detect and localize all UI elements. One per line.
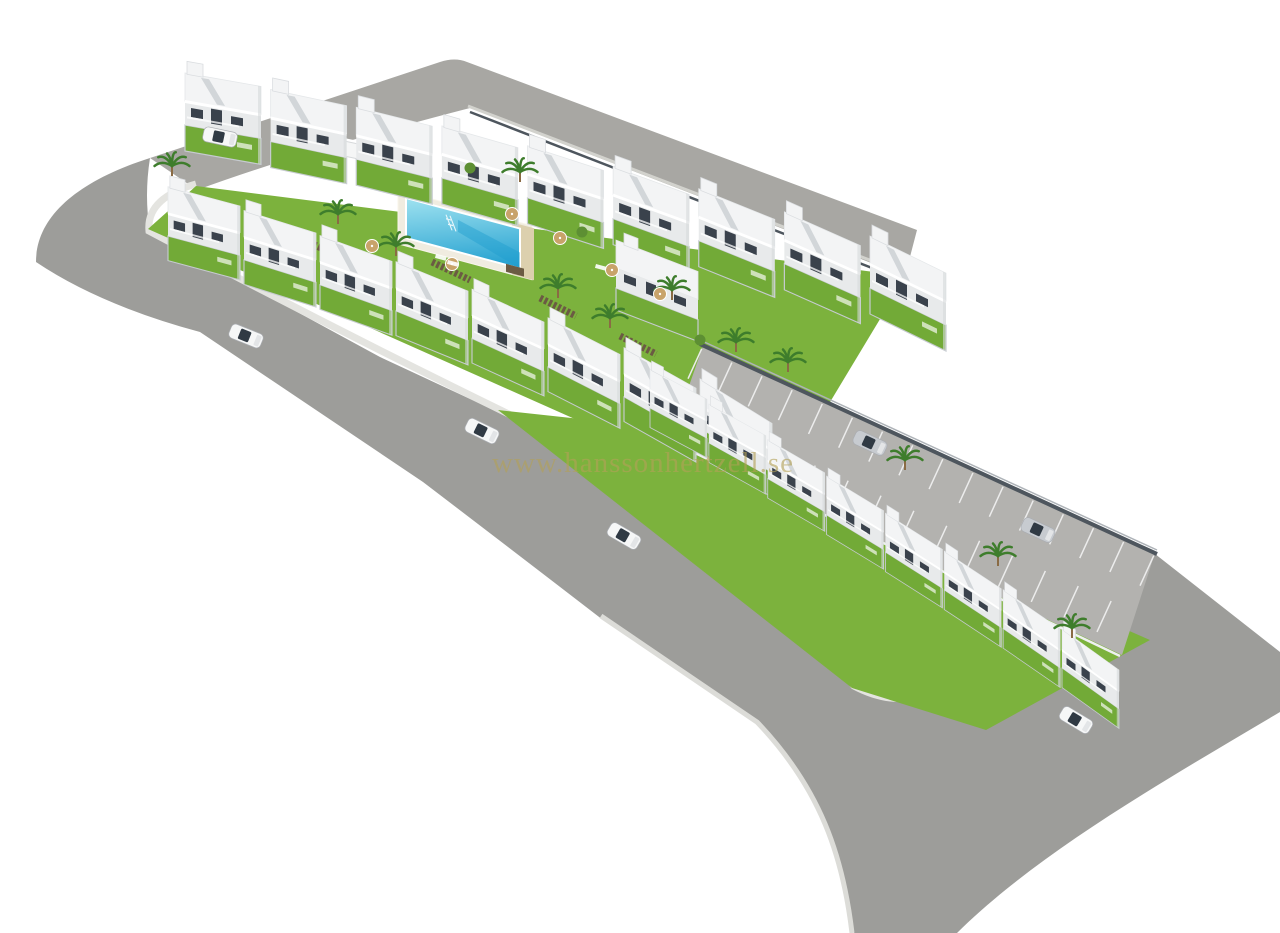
unit-divider: [822, 471, 824, 531]
townhouse-unit: [271, 78, 347, 184]
unit-divider: [686, 193, 689, 272]
render-canvas: www.hanssonhertzell.se: [0, 0, 1280, 933]
parasol-pole: [559, 237, 561, 239]
parasol-pole: [611, 269, 613, 271]
bush: [695, 335, 706, 346]
unit-divider: [601, 169, 604, 248]
unit-divider: [237, 205, 240, 280]
bush: [465, 163, 476, 174]
unit-divider: [465, 290, 468, 365]
unit-divider: [258, 86, 261, 165]
unit-divider: [617, 353, 620, 428]
site-plan-render: [0, 0, 1280, 933]
bush: [577, 227, 588, 238]
unit-divider: [705, 398, 707, 458]
unit-divider: [999, 587, 1001, 647]
unit-divider: [389, 260, 392, 335]
unit-divider: [772, 218, 775, 297]
parasol-pole: [371, 245, 373, 247]
parasol-pole: [511, 213, 513, 215]
parasol-pole: [659, 293, 661, 295]
unit-divider: [1058, 627, 1060, 687]
stair-tower: [187, 61, 203, 77]
unit-divider: [429, 125, 432, 204]
townhouse-unit: [185, 61, 261, 164]
unit-divider: [940, 548, 942, 608]
unit-divider: [1117, 668, 1119, 728]
unit-divider: [344, 105, 347, 184]
unit-divider: [857, 244, 860, 323]
unit-divider: [541, 321, 544, 396]
unit-divider: [764, 434, 766, 494]
unit-divider: [881, 509, 883, 569]
unit-divider: [943, 272, 946, 351]
unit-divider: [313, 232, 316, 307]
car-windshield: [212, 130, 225, 143]
